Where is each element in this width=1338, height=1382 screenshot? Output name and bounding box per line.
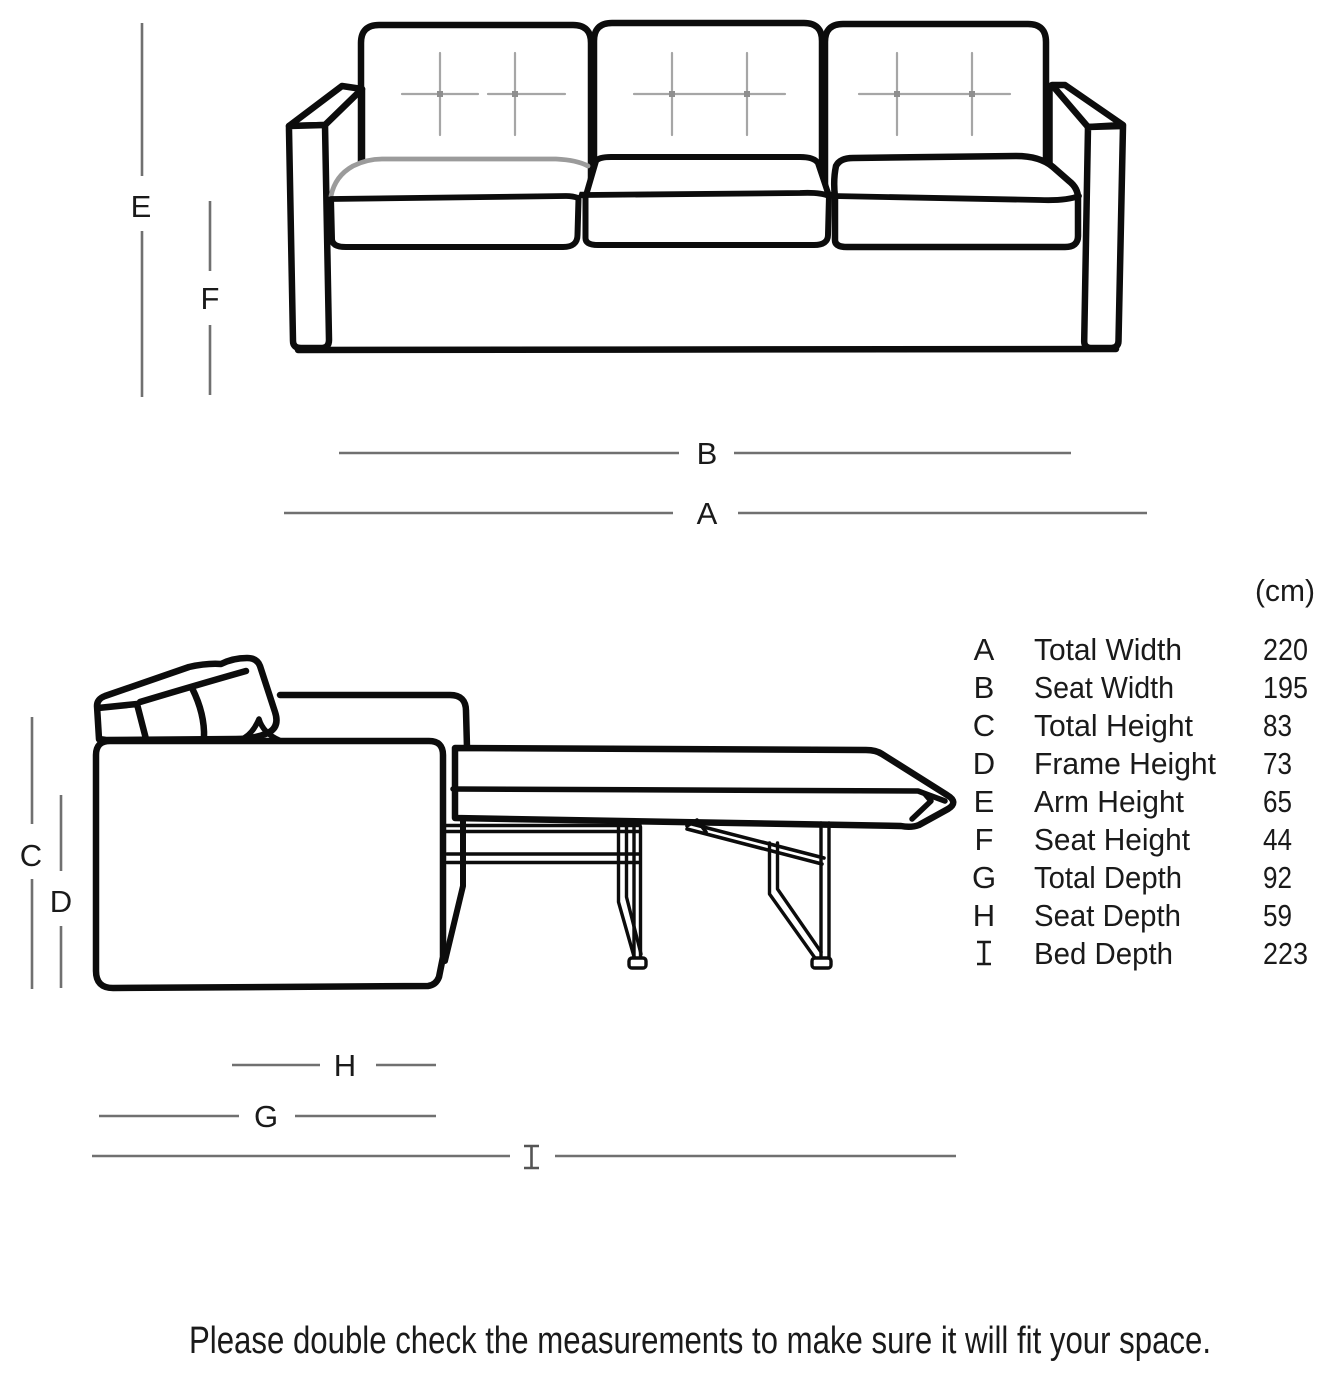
svg-text:(cm): (cm) <box>1255 573 1315 608</box>
svg-text:Total Width: Total Width <box>1034 632 1182 667</box>
svg-text:C: C <box>20 838 42 873</box>
svg-text:F: F <box>975 822 994 857</box>
svg-text:A: A <box>697 496 718 531</box>
svg-text:Please double check the measur: Please double check the measurements to … <box>189 1320 1211 1362</box>
svg-text:Bed Depth: Bed Depth <box>1034 936 1173 971</box>
svg-text:G: G <box>254 1099 278 1134</box>
svg-text:44: 44 <box>1263 822 1292 857</box>
svg-text:H: H <box>334 1048 356 1083</box>
svg-text:G: G <box>972 860 996 895</box>
svg-text:B: B <box>974 670 995 705</box>
svg-text:Seat Width: Seat Width <box>1034 670 1174 705</box>
svg-text:Seat Height: Seat Height <box>1034 822 1190 857</box>
svg-text:Total Height: Total Height <box>1034 708 1193 743</box>
svg-text:F: F <box>201 281 220 316</box>
svg-text:E: E <box>131 189 152 224</box>
svg-text:195: 195 <box>1263 670 1308 705</box>
svg-text:73: 73 <box>1263 746 1292 781</box>
svg-text:92: 92 <box>1263 860 1292 895</box>
svg-text:223: 223 <box>1263 936 1308 971</box>
svg-text:65: 65 <box>1263 784 1292 819</box>
svg-text:Seat Depth: Seat Depth <box>1034 898 1181 933</box>
svg-text:220: 220 <box>1263 632 1308 667</box>
svg-text:B: B <box>697 436 718 471</box>
svg-text:A: A <box>974 632 995 667</box>
svg-text:D: D <box>50 884 72 919</box>
svg-text:H: H <box>973 898 995 933</box>
svg-text:D: D <box>973 746 995 781</box>
svg-text:Arm Height: Arm Height <box>1034 784 1184 819</box>
svg-text:83: 83 <box>1263 708 1292 743</box>
svg-text:C: C <box>973 708 995 743</box>
svg-text:59: 59 <box>1263 898 1292 933</box>
svg-text:Frame Height: Frame Height <box>1034 746 1216 781</box>
svg-text:Total Depth: Total Depth <box>1034 860 1182 895</box>
svg-text:E: E <box>974 784 995 819</box>
